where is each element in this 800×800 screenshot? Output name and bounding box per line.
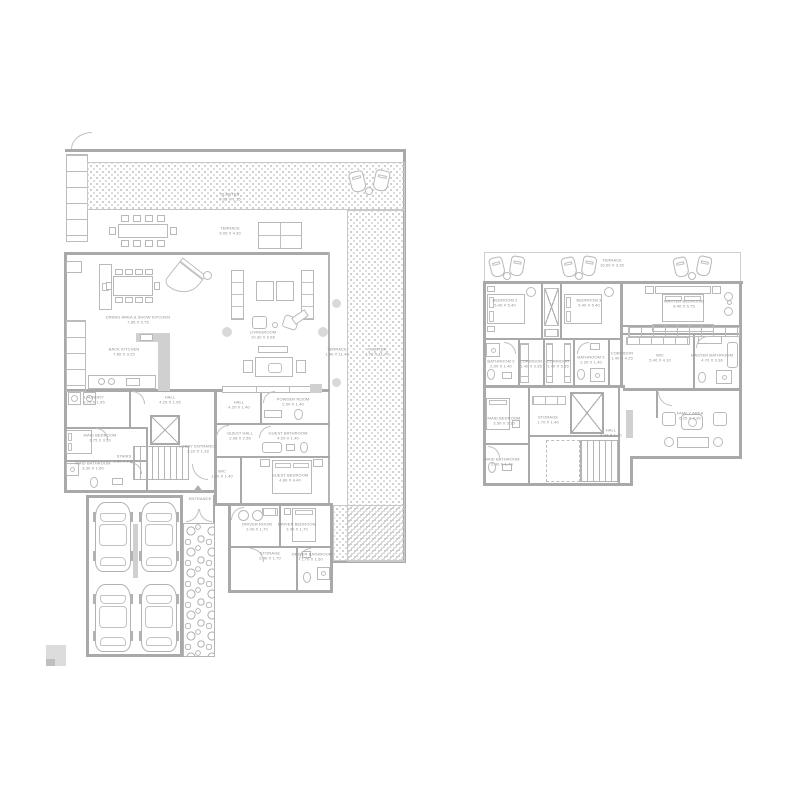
wall-segment	[630, 456, 633, 486]
side-table	[503, 272, 511, 280]
toilet	[487, 369, 495, 380]
pillow	[489, 311, 494, 322]
wall-segment	[560, 284, 562, 338]
room-label: FAMILY AREA6.25 X 4.30	[677, 411, 704, 421]
room-label: CORRIDOR1.40 X 3.35	[520, 359, 543, 369]
room-label: BATHROOM 22.00 X 1.40	[487, 359, 514, 369]
side-table	[575, 272, 583, 280]
room-label: CORRIDOR1.40 X 3.35	[547, 359, 570, 369]
detail-line	[585, 260, 593, 264]
nightstand	[487, 326, 495, 332]
room-label: WIC5.40 X 4.10	[649, 353, 671, 363]
room-label: BEDROOM 35.40 X 5.40	[577, 298, 602, 308]
room-label: MASTER BEDROOM6.40 X 5.75	[664, 299, 704, 309]
room-label: TERRACE16.60 X 3.35	[600, 258, 624, 268]
pouf	[724, 307, 733, 316]
armchair	[526, 287, 536, 297]
detail-line	[595, 373, 600, 378]
room-label: MAID BEDROOM3.50 X 3.10	[488, 416, 521, 426]
storage-shelves	[532, 396, 566, 405]
door-arc	[504, 342, 516, 354]
wardrobe	[544, 329, 559, 337]
room-label: MASTER BATHROOM4.70 X 3.36	[691, 353, 733, 363]
tv-console	[677, 437, 709, 448]
detail-line	[491, 348, 496, 353]
stairs-symbol	[580, 440, 618, 482]
wall-segment	[739, 281, 742, 459]
logo-corner	[46, 659, 55, 666]
shower	[590, 368, 605, 382]
detail-line	[676, 261, 684, 266]
wall-segment	[483, 385, 625, 388]
wall-segment	[483, 338, 623, 340]
room-label: MAID BATHROOM2.40 X 1.70	[484, 457, 519, 467]
pillow	[566, 311, 571, 322]
sink	[502, 372, 512, 379]
room-label: HALL2.42 X 1.70	[600, 428, 622, 438]
detail-line	[722, 375, 727, 380]
shower	[716, 370, 732, 384]
wall-segment	[608, 340, 610, 385]
shower	[486, 343, 500, 357]
pillow	[566, 297, 571, 308]
room-label: BATHROOM 32.20 X 1.40	[577, 355, 604, 365]
nightstand	[487, 286, 495, 292]
room-label: BEDROOM 25.40 X 5.40	[493, 298, 518, 308]
pillow	[489, 400, 507, 405]
wall-segment	[543, 340, 545, 385]
nightstand	[645, 286, 654, 294]
armchair	[604, 287, 614, 297]
pocket-door	[626, 410, 633, 438]
wall-segment	[483, 483, 633, 486]
side-table	[713, 437, 723, 447]
toilet	[577, 369, 585, 380]
headboard	[655, 286, 711, 294]
wall-segment	[630, 456, 742, 459]
sink	[590, 343, 600, 350]
detail-line	[492, 261, 500, 266]
wardrobe-cabinet	[544, 288, 559, 326]
nightstand	[712, 286, 721, 294]
door-arc	[658, 392, 672, 406]
detail-line	[564, 261, 572, 266]
side-table	[688, 272, 696, 280]
stairs-void	[546, 440, 580, 482]
wall-segment	[623, 388, 742, 391]
toilet	[698, 372, 706, 383]
detail-line	[513, 260, 521, 264]
room-label: CORRIDOR1.40 X 4.25	[611, 351, 634, 361]
side-table	[664, 437, 674, 447]
logo-mark	[46, 645, 66, 666]
room-label: STORAGE1.70 X 1.40	[537, 415, 559, 425]
first-floor-plan: TERRACE16.60 X 3.35 BEDROOM 25.40 X 5.40…	[0, 0, 800, 800]
armchair	[713, 412, 727, 426]
wall-segment	[483, 281, 486, 486]
side-table	[727, 300, 732, 305]
wall-segment	[483, 281, 743, 284]
elevator-symbol	[570, 392, 604, 434]
wic-shelves	[626, 337, 690, 345]
wall-segment	[483, 443, 530, 445]
armchair	[662, 412, 676, 426]
door-arc	[577, 342, 589, 354]
wall-segment	[573, 340, 575, 385]
closet-row	[628, 327, 740, 337]
detail-line	[701, 260, 709, 265]
wall-segment	[541, 284, 543, 338]
wall-segment	[620, 284, 623, 385]
